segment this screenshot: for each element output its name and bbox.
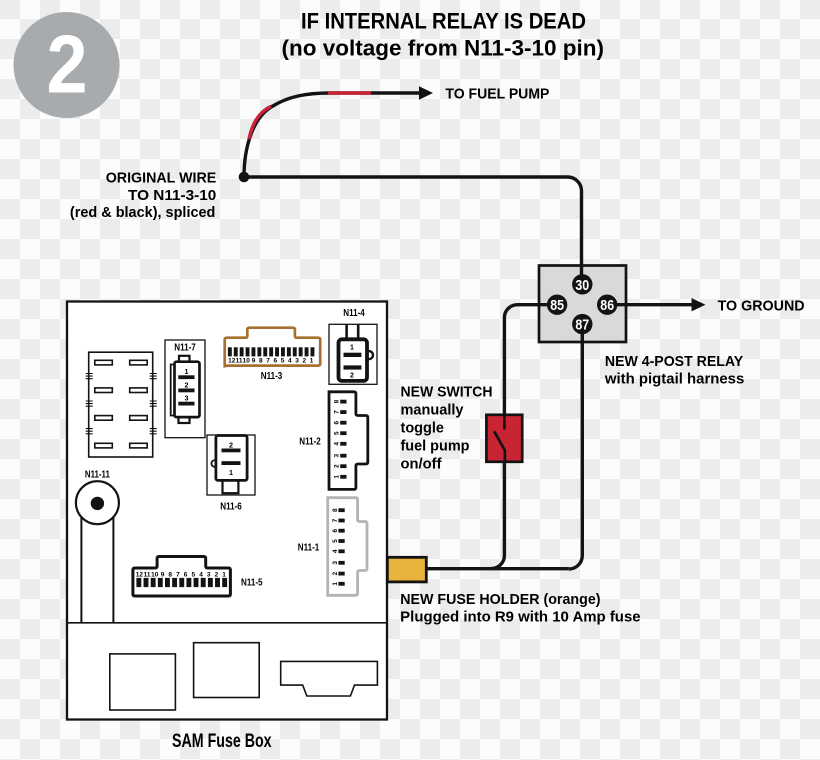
svg-text:12: 12	[136, 572, 144, 579]
svg-text:8: 8	[334, 399, 341, 403]
svg-text:2: 2	[334, 464, 341, 468]
svg-text:toggle: toggle	[401, 421, 445, 437]
svg-text:2: 2	[229, 440, 233, 449]
svg-text:2: 2	[185, 380, 189, 389]
svg-text:5: 5	[332, 539, 339, 543]
svg-text:7: 7	[176, 572, 180, 579]
svg-text:7: 7	[266, 358, 270, 365]
svg-text:2: 2	[302, 358, 306, 365]
svg-text:TO GROUND: TO GROUND	[718, 298, 805, 314]
svg-text:3: 3	[295, 358, 299, 365]
svg-text:1: 1	[334, 475, 341, 479]
svg-text:11: 11	[144, 572, 151, 579]
svg-text:7: 7	[334, 410, 341, 414]
svg-text:N11-6: N11-6	[220, 502, 242, 513]
svg-text:NEW 4-POST RELAY: NEW 4-POST RELAY	[605, 354, 744, 370]
svg-text:10: 10	[243, 358, 251, 365]
svg-text:6: 6	[332, 529, 339, 533]
svg-text:3: 3	[185, 394, 189, 403]
svg-text:1: 1	[310, 358, 314, 365]
svg-text:85: 85	[550, 297, 564, 314]
svg-text:N11-2: N11-2	[299, 437, 321, 448]
svg-text:1: 1	[185, 367, 189, 376]
svg-text:7: 7	[332, 518, 339, 522]
svg-text:3: 3	[332, 561, 339, 565]
svg-text:2: 2	[215, 572, 219, 579]
svg-text:fuel pump: fuel pump	[401, 439, 470, 455]
svg-text:30: 30	[575, 277, 589, 294]
svg-text:TO FUEL PUMP: TO FUEL PUMP	[445, 87, 549, 103]
svg-text:4: 4	[199, 572, 203, 579]
svg-text:NEW FUSE HOLDER (orange): NEW FUSE HOLDER (orange)	[400, 592, 600, 608]
svg-text:87: 87	[575, 317, 589, 334]
svg-text:ORIGINAL WIRE: ORIGINAL WIRE	[106, 170, 217, 186]
svg-text:2: 2	[47, 18, 88, 111]
svg-text:4: 4	[332, 549, 339, 553]
svg-text:2: 2	[332, 571, 339, 575]
svg-text:N11-11: N11-11	[85, 470, 110, 481]
svg-text:4: 4	[288, 358, 292, 365]
svg-text:SAM Fuse Box: SAM Fuse Box	[172, 731, 272, 752]
svg-text:1: 1	[222, 572, 226, 579]
svg-text:N11-5: N11-5	[241, 578, 263, 589]
svg-text:manually: manually	[401, 402, 465, 418]
svg-text:86: 86	[600, 297, 614, 314]
svg-text:9: 9	[161, 572, 165, 579]
svg-text:(no voltage from N11-3-10 pin): (no voltage from N11-3-10 pin)	[282, 36, 605, 61]
svg-text:3: 3	[334, 454, 341, 458]
svg-text:2: 2	[350, 373, 354, 380]
svg-text:8: 8	[332, 508, 339, 512]
svg-text:N11-4: N11-4	[343, 308, 365, 319]
svg-text:N11-1: N11-1	[298, 543, 320, 554]
svg-text:6: 6	[184, 572, 188, 579]
svg-text:with pigtail harness: with pigtail harness	[604, 371, 744, 387]
svg-text:(red & black), spliced: (red & black), spliced	[70, 205, 216, 221]
svg-text:5: 5	[281, 358, 285, 365]
svg-text:IF INTERNAL RELAY IS DEAD: IF INTERNAL RELAY IS DEAD	[301, 8, 586, 33]
svg-text:TO N11-3-10: TO N11-3-10	[128, 188, 216, 204]
svg-text:9: 9	[252, 358, 256, 365]
svg-text:4: 4	[334, 442, 341, 446]
svg-text:10: 10	[151, 572, 159, 579]
svg-text:1: 1	[332, 582, 339, 586]
svg-text:Plugged into R9 with 10 Amp fu: Plugged into R9 with 10 Amp fuse	[400, 609, 640, 625]
svg-text:1: 1	[229, 468, 233, 477]
svg-text:6: 6	[334, 421, 341, 425]
svg-text:5: 5	[334, 431, 341, 435]
svg-text:3: 3	[207, 572, 211, 579]
svg-text:1: 1	[350, 345, 354, 352]
svg-text:on/off: on/off	[401, 457, 442, 473]
svg-text:6: 6	[273, 358, 277, 365]
svg-text:NEW SWITCH: NEW SWITCH	[401, 384, 493, 400]
svg-text:8: 8	[168, 572, 172, 579]
svg-text:N11-3: N11-3	[261, 371, 283, 382]
svg-text:8: 8	[259, 358, 263, 365]
svg-text:5: 5	[191, 572, 195, 579]
svg-text:N11-7: N11-7	[174, 342, 196, 353]
